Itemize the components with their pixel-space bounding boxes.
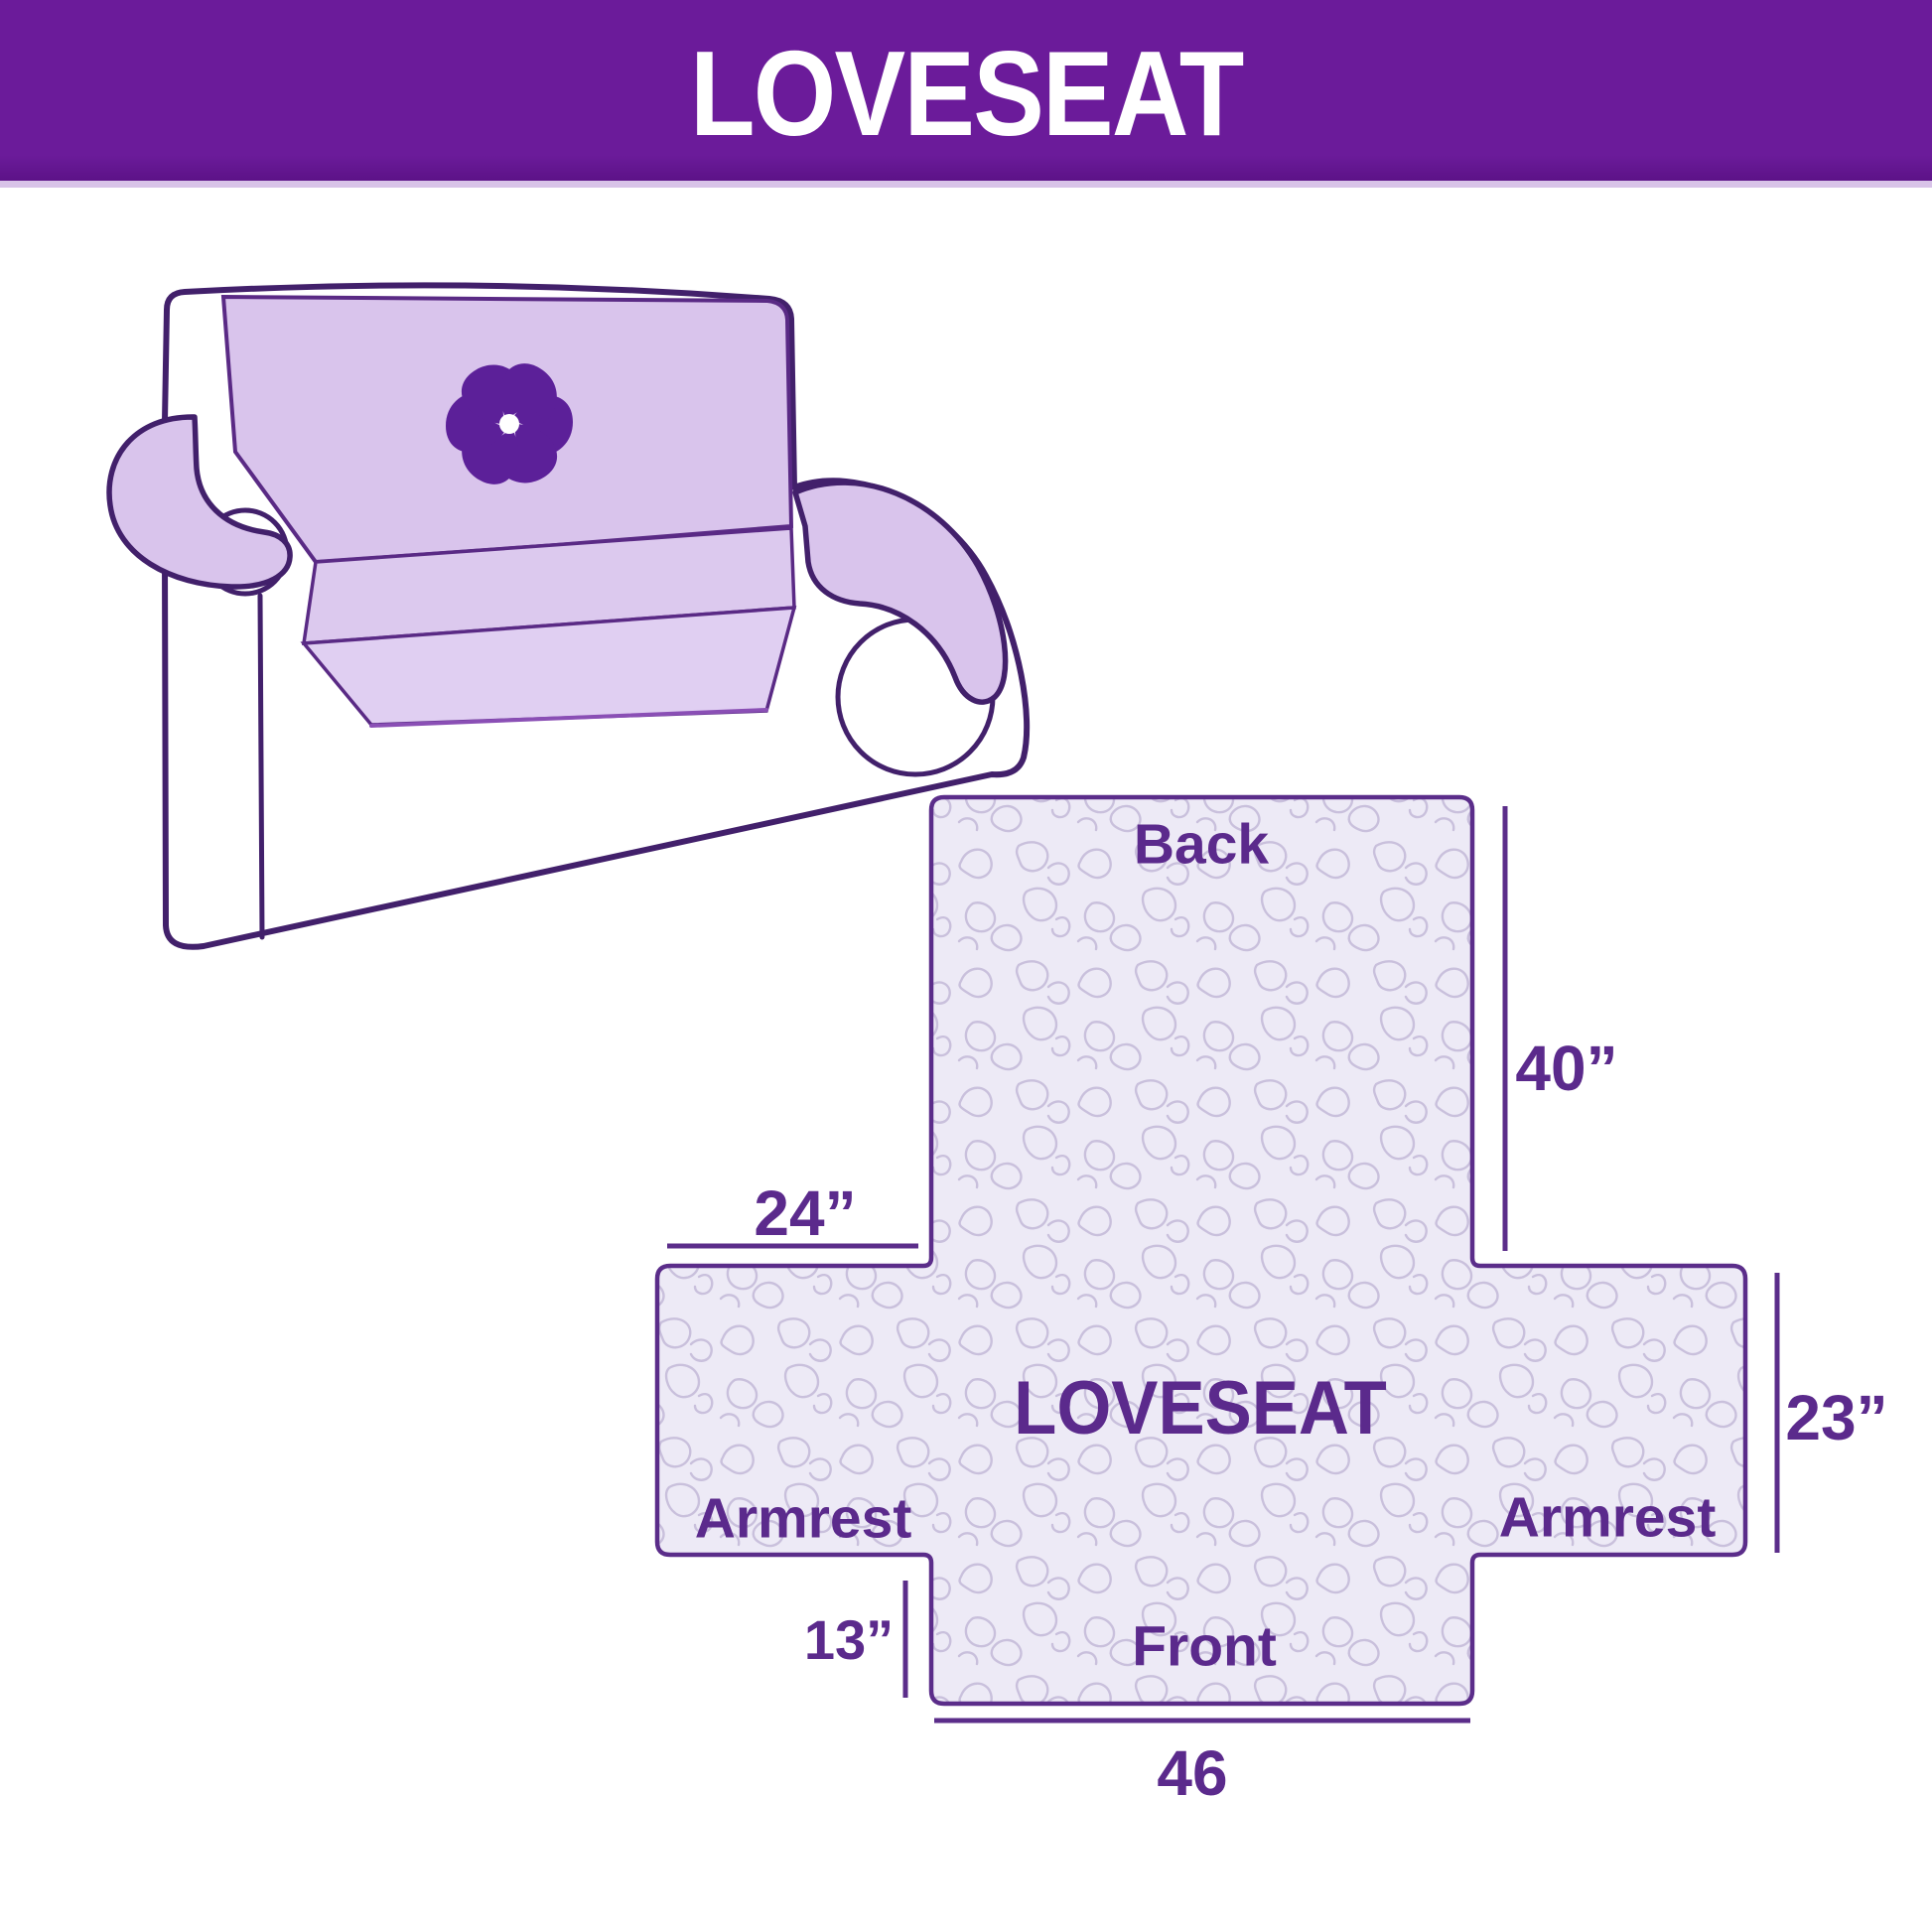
title-banner: LOVESEAT: [0, 0, 1932, 181]
dim-label-24: 24”: [754, 1181, 856, 1245]
diagram-armrest-right-label: Armrest: [1499, 1490, 1717, 1547]
banner-accent-strip: [0, 181, 1932, 188]
dim-label-40: 40”: [1515, 1036, 1617, 1100]
cover-cross-shape: [657, 797, 1745, 1704]
dim-label-13: 13”: [804, 1612, 894, 1668]
diagram-front-label: Front: [1132, 1619, 1277, 1676]
dim-label-23: 23”: [1785, 1386, 1887, 1449]
sofa-left-arm-front-edge: [260, 596, 262, 937]
infographic-canvas: [0, 0, 1932, 1932]
diagram-center-label: LOVESEAT: [1014, 1371, 1387, 1447]
diagram-armrest-left-label: Armrest: [695, 1491, 912, 1548]
page-title: LOVESEAT: [690, 27, 1243, 154]
cover-layout-diagram: [657, 797, 1777, 1721]
diagram-back-label: Back: [1134, 817, 1269, 874]
dim-label-46: 46: [1157, 1741, 1227, 1805]
sofa-illustration: [109, 285, 1027, 946]
